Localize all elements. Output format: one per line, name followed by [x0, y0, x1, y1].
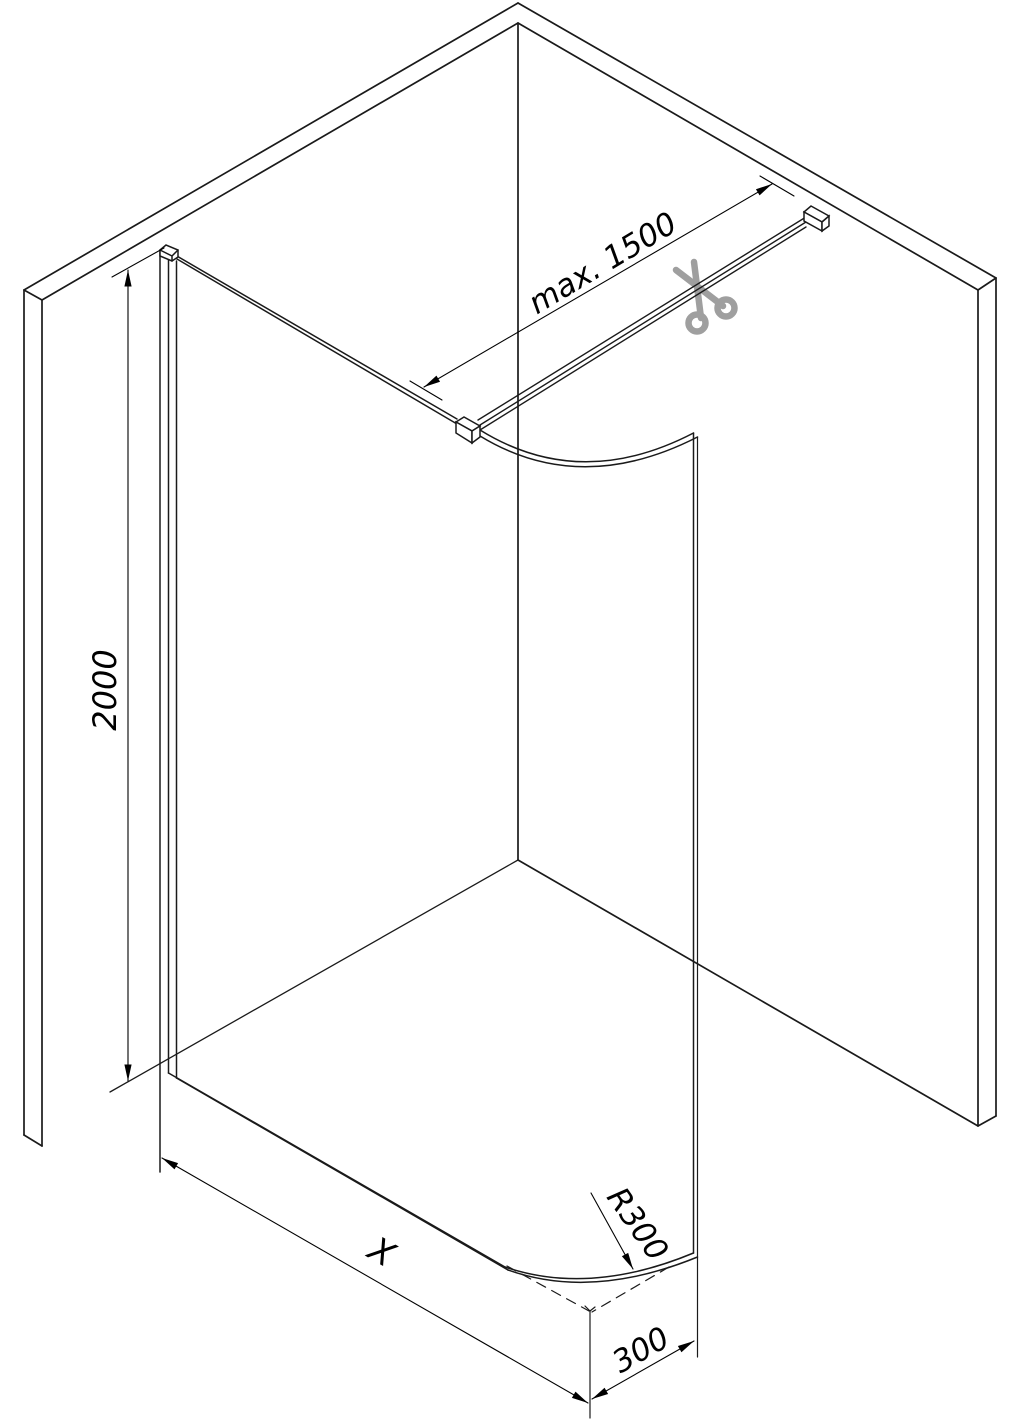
glass-panel: [160, 245, 698, 1418]
label-max-1500: max. 1500: [522, 205, 683, 321]
glass-bracket: [456, 417, 480, 443]
dimension-x: [162, 1158, 588, 1403]
dimensions: [112, 176, 794, 1403]
label-x: X: [360, 1228, 403, 1276]
dimension-max-1500: [410, 176, 794, 400]
right-wall: [110, 3, 996, 1126]
left-wall: [24, 3, 518, 1146]
shower-screen-diagram: 2000 max. 1500 X R300 300: [0, 0, 1017, 1421]
label-r300: R300: [599, 1181, 675, 1268]
floor-line-left: [110, 860, 518, 1092]
label-2000: 2000: [86, 649, 124, 730]
floor-line-right: [518, 860, 978, 1126]
walls: [24, 3, 996, 1146]
diagram-canvas: 2000 max. 1500 X R300 300: [0, 0, 1017, 1421]
wall-bracket: [804, 206, 829, 231]
radius-construction: [507, 1266, 669, 1312]
